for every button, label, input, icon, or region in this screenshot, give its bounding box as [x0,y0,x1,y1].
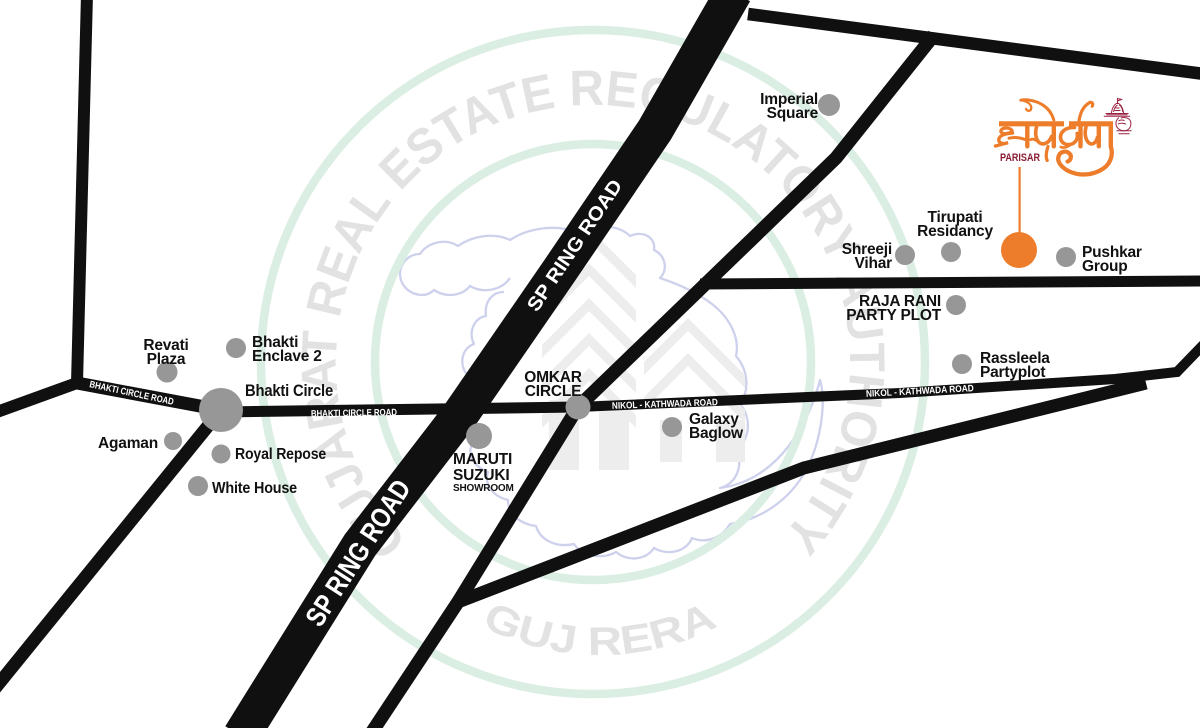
svg-text:PARTY PLOT: PARTY PLOT [846,307,941,324]
svg-text:Square: Square [767,105,819,122]
svg-text:BHAKTI CIRCLE ROAD: BHAKTI CIRCLE ROAD [311,407,397,420]
svg-text:Residancy: Residancy [917,223,993,240]
svg-text:MARUTI: MARUTI [453,451,512,468]
svg-text:CIRCLE: CIRCLE [525,383,582,400]
svg-text:Royal Repose: Royal Repose [235,446,327,463]
svg-text:Bhakti Circle: Bhakti Circle [245,381,333,400]
svg-text:Enclave 2: Enclave 2 [252,348,322,365]
svg-text:PARISAR: PARISAR [1000,152,1040,164]
svg-text:Plaza: Plaza [147,351,186,368]
svg-text:SHOWROOM: SHOWROOM [453,483,514,494]
svg-text:Agaman: Agaman [98,435,158,452]
svg-text:SUZUKI: SUZUKI [453,467,510,484]
svg-text:White House: White House [212,480,298,497]
svg-text:Partyplot: Partyplot [980,364,1045,381]
svg-text:Baglow: Baglow [689,425,744,442]
svg-text:Vihar: Vihar [855,255,893,272]
svg-text:Group: Group [1082,258,1128,275]
